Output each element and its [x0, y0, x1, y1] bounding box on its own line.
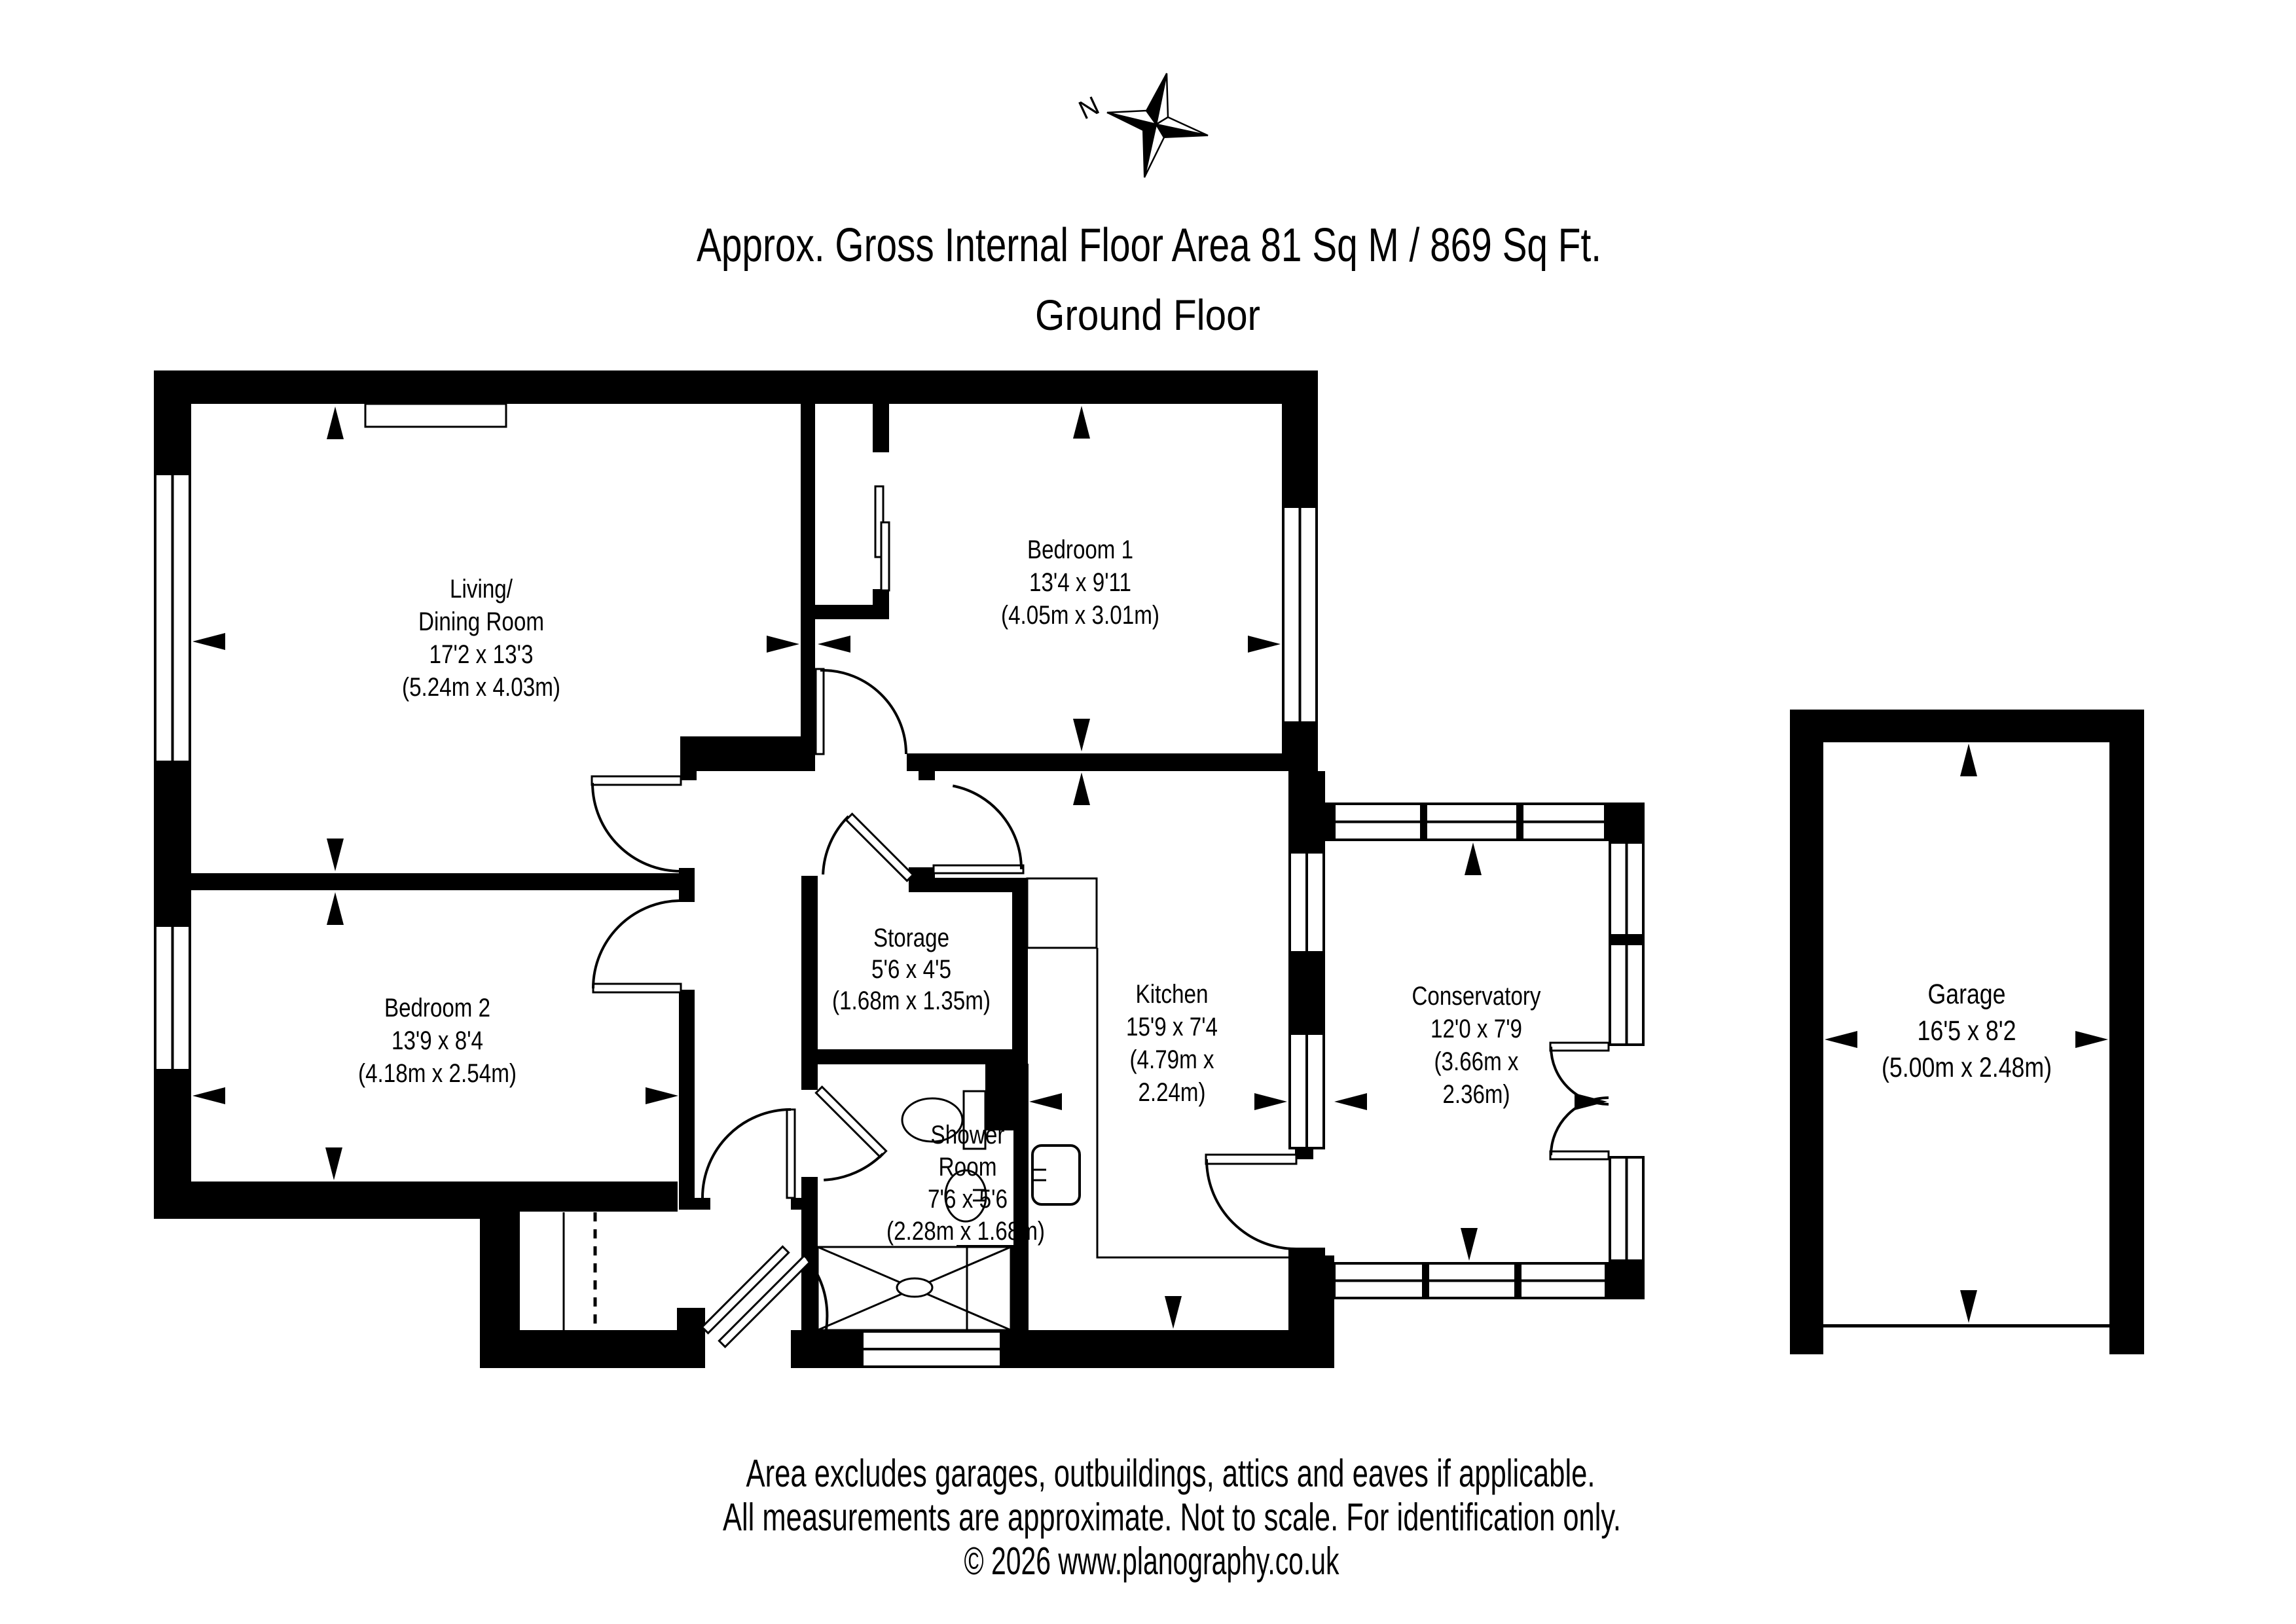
svg-text:(5.00m x 2.48m): (5.00m x 2.48m) [1882, 1052, 2052, 1083]
svg-text:Conservatory: Conservatory [1412, 982, 1541, 1011]
svg-text:5'6 x 4'5: 5'6 x 4'5 [871, 955, 951, 984]
svg-text:(4.05m x 3.01m): (4.05m x 3.01m) [1001, 601, 1159, 630]
svg-text:Room: Room [939, 1153, 997, 1182]
svg-text:17'2 x 13'3: 17'2 x 13'3 [429, 640, 534, 669]
svg-text:(4.79m x: (4.79m x [1130, 1045, 1214, 1074]
svg-text:15'9 x 7'4: 15'9 x 7'4 [1126, 1013, 1218, 1041]
svg-text:(1.68m x 1.35m): (1.68m x 1.35m) [832, 986, 991, 1015]
svg-text:13'4 x 9'11: 13'4 x 9'11 [1029, 568, 1131, 597]
svg-text:12'0 x 7'9: 12'0 x 7'9 [1430, 1015, 1522, 1043]
svg-text:(2.28m x 1.68m): (2.28m x 1.68m) [886, 1217, 1045, 1246]
svg-text:Shower: Shower [931, 1121, 1005, 1149]
svg-text:Bedroom 2: Bedroom 2 [384, 994, 490, 1022]
svg-text:© 2026 www.planography.co.uk: © 2026 www.planography.co.uk [964, 1540, 1339, 1583]
svg-text:All measurements are approxima: All measurements are approximate. Not to… [723, 1496, 1621, 1539]
svg-text:(4.18m x 2.54m): (4.18m x 2.54m) [358, 1059, 517, 1088]
svg-text:Area excludes garages, outbuil: Area excludes garages, outbuildings, att… [746, 1452, 1595, 1495]
svg-text:7'6 x 5'6: 7'6 x 5'6 [928, 1185, 1008, 1214]
svg-text:Approx. Gross Internal Floor A: Approx. Gross Internal Floor Area 81 Sq … [697, 219, 1601, 272]
svg-text:(5.24m x 4.03m): (5.24m x 4.03m) [402, 673, 560, 702]
svg-text:Garage: Garage [1928, 979, 2006, 1010]
svg-text:Dining Room: Dining Room [418, 607, 544, 636]
svg-text:16'5 x 8'2: 16'5 x 8'2 [1918, 1015, 2016, 1047]
svg-text:(3.66m x: (3.66m x [1434, 1047, 1519, 1076]
svg-text:Storage: Storage [873, 924, 949, 952]
svg-text:Ground Floor: Ground Floor [1035, 291, 1260, 339]
svg-text:Living/: Living/ [450, 575, 513, 604]
svg-text:2.24m): 2.24m) [1139, 1078, 1206, 1107]
svg-text:13'9 x 8'4: 13'9 x 8'4 [392, 1026, 483, 1055]
svg-text:Bedroom 1: Bedroom 1 [1027, 535, 1133, 564]
svg-text:Kitchen: Kitchen [1136, 980, 1209, 1009]
svg-text:2.36m): 2.36m) [1443, 1080, 1510, 1109]
